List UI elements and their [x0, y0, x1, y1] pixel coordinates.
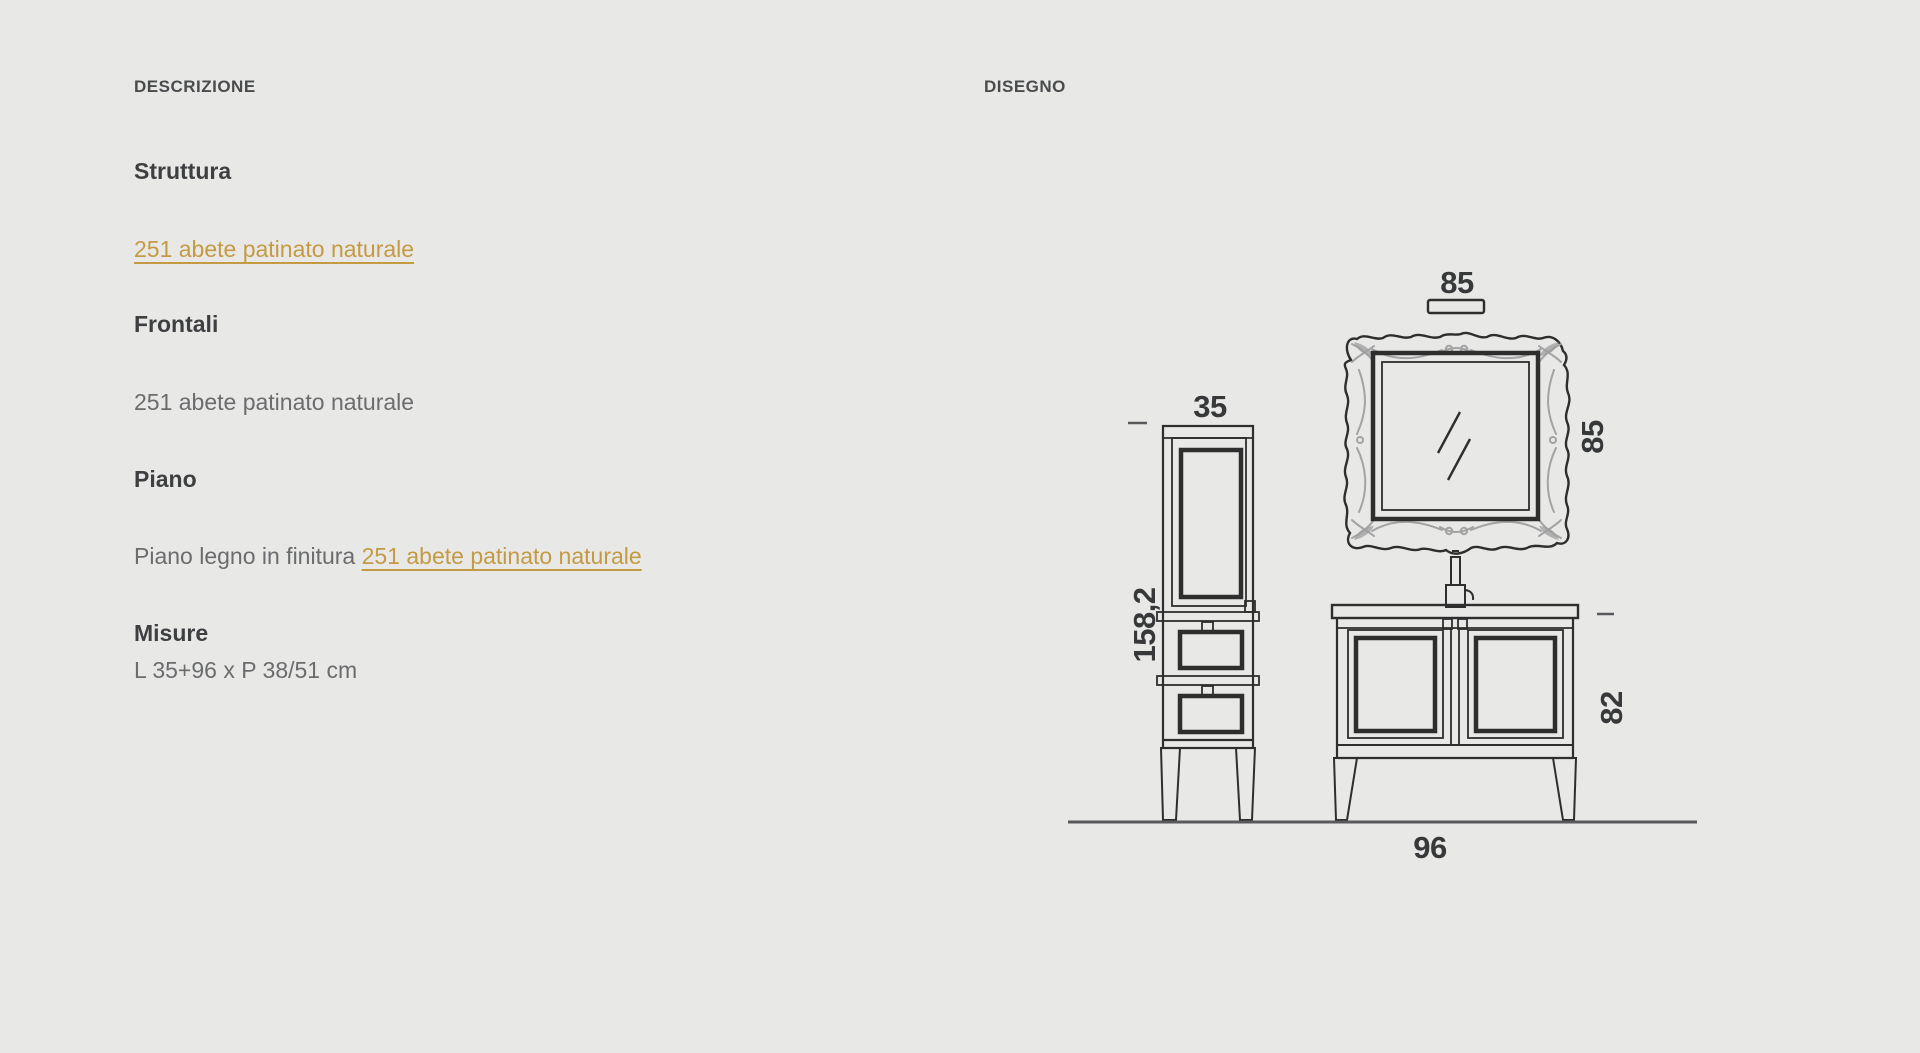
column-leg	[1236, 748, 1255, 820]
column-drawer-2	[1180, 696, 1242, 732]
vanity-leg	[1334, 758, 1357, 820]
dim-mirror-height: 85	[1575, 420, 1610, 454]
technical-drawing: 35 158,2 85 85 82 96	[0, 0, 1920, 1053]
vanity-door-right	[1476, 638, 1555, 731]
dim-column-width: 35	[1193, 389, 1227, 424]
dim-vanity-height: 82	[1594, 691, 1629, 724]
dim-mirror-width: 85	[1440, 265, 1474, 300]
mirror	[1344, 300, 1569, 554]
vanity-leg	[1553, 758, 1576, 820]
column-drawer-1	[1180, 632, 1242, 668]
mirror-glass-slash	[1438, 412, 1460, 453]
mirror-bracket	[1428, 300, 1484, 313]
product-spec-page: DESCRIZIONE Struttura 251 abete patinato…	[0, 0, 1920, 1053]
column-leg	[1161, 748, 1180, 820]
column-door-panel	[1181, 450, 1241, 597]
faucet	[1446, 551, 1473, 607]
vanity-door-left	[1356, 638, 1435, 731]
column-cabinet	[1157, 426, 1259, 820]
mirror-glass-slash	[1448, 439, 1470, 480]
mirror-inner-frame	[1373, 353, 1538, 519]
dim-column-height: 158,2	[1127, 587, 1162, 662]
dim-vanity-width: 96	[1413, 830, 1447, 865]
vanity-cabinet	[1332, 551, 1578, 820]
